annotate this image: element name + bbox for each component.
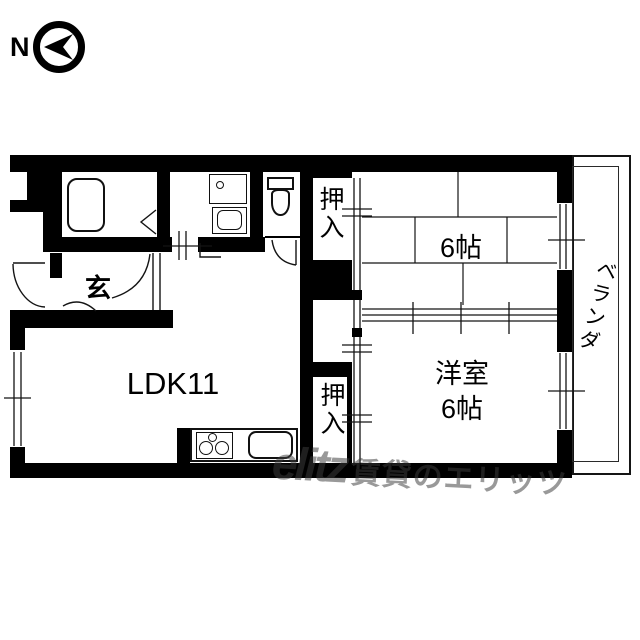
toilet-door-arc <box>272 240 296 265</box>
room-partition-sliding-doors <box>362 302 557 334</box>
stove-burner-right-icon <box>215 441 229 455</box>
genkan-double-door <box>153 253 160 310</box>
floorplan-page: N <box>0 0 640 640</box>
stove-burner-left-icon <box>199 441 213 455</box>
western-room-name-label: 洋室 <box>392 352 532 391</box>
stove-burner-small-icon <box>208 433 217 442</box>
closet-fusuma-door <box>342 178 372 290</box>
symbol-overlay <box>0 0 640 640</box>
closet-bottom-label: 押入 <box>318 382 343 438</box>
watermark-logo: elitz <box>271 437 348 493</box>
entrance-label: 玄 <box>76 268 120 305</box>
north-label: N <box>10 32 30 63</box>
washing-machine-icon <box>217 210 242 230</box>
entry-door-arc <box>13 264 45 307</box>
watermark-text: 賃貸のエリッツ <box>350 457 568 501</box>
vanity-faucet-icon <box>216 181 224 189</box>
door-swing-arcs <box>13 210 296 311</box>
hall-step-line <box>200 243 221 257</box>
closet-top-label: 押入 <box>317 186 342 242</box>
tatami-room-label: 6帖 <box>411 226 511 265</box>
western-room-sliding-door <box>342 290 372 463</box>
western-room-size-label: 6帖 <box>392 387 532 426</box>
ldk-label: LDK11 <box>103 366 243 402</box>
bath-folding-door <box>141 210 156 234</box>
